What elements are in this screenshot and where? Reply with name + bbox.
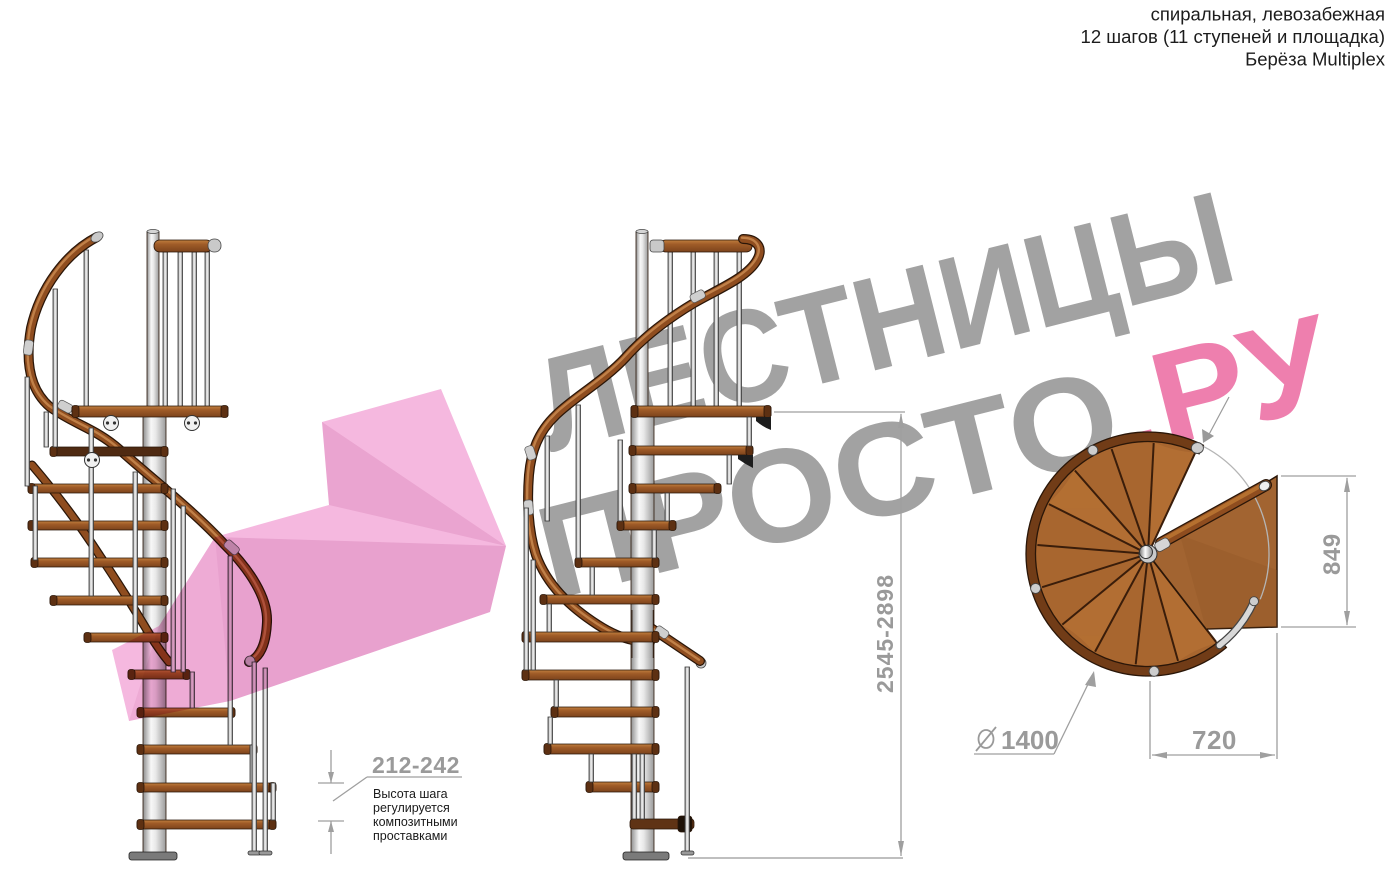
svg-text:регулируется: регулируется [373, 801, 450, 815]
svg-text:проставками: проставками [373, 829, 447, 843]
svg-text:720: 720 [1192, 725, 1237, 755]
svg-text:1400: 1400 [1001, 725, 1059, 755]
svg-text:212-242: 212-242 [372, 752, 460, 778]
svg-text:2545-2898: 2545-2898 [872, 574, 898, 693]
svg-text:Берёза Multiplex: Берёза Multiplex [1245, 49, 1386, 70]
svg-text:Высота шага: Высота шага [373, 787, 448, 801]
svg-text:849: 849 [1319, 533, 1346, 575]
svg-text:композитными: композитными [373, 815, 458, 829]
svg-text:12 шагов (11 ступеней и площад: 12 шагов (11 ступеней и площадка) [1081, 26, 1385, 47]
svg-text:спиральная, левозабежная: спиральная, левозабежная [1151, 4, 1385, 25]
